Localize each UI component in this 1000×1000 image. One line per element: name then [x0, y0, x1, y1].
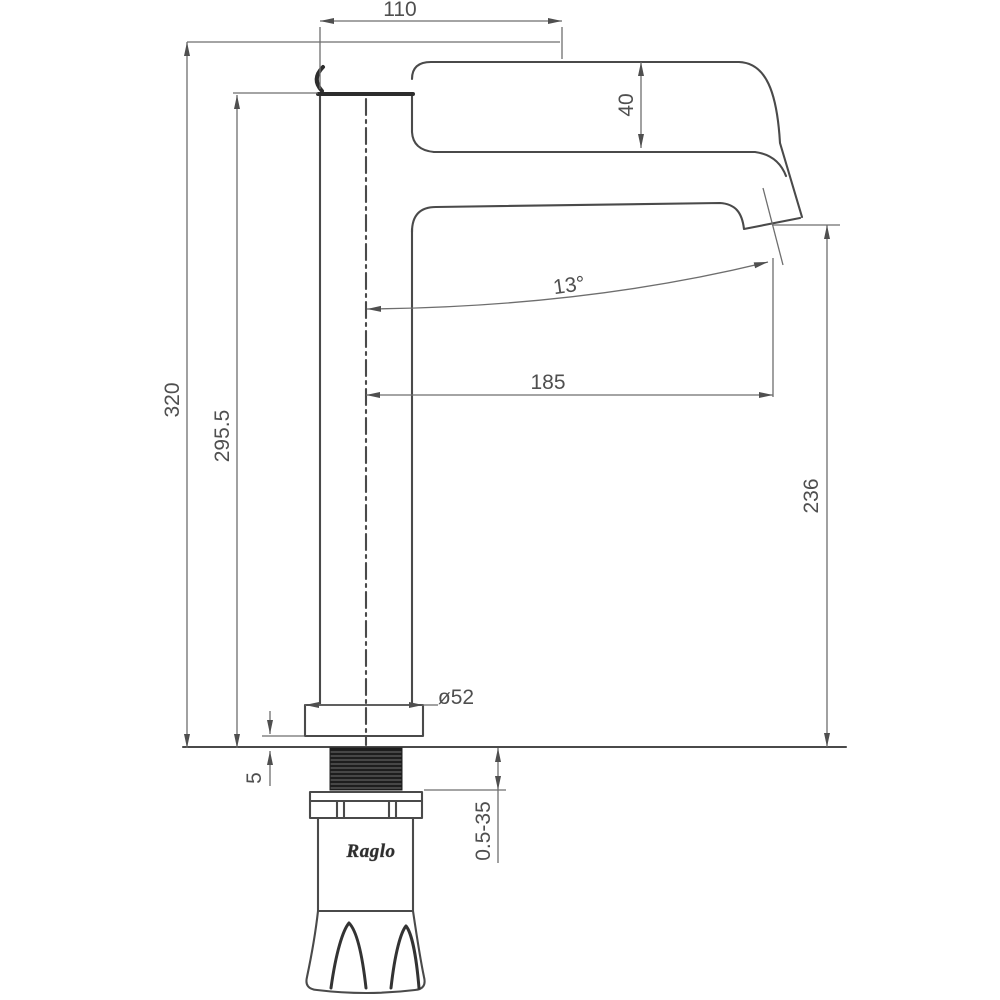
foot-ridge-right	[391, 926, 419, 988]
dim-spout-angle: 13°	[367, 188, 783, 309]
dim-label-185: 185	[530, 371, 565, 394]
drawing-canvas: 110 320 295.5 40 13° 185	[0, 0, 1000, 1000]
dim-label-5: 5	[243, 772, 266, 784]
spout-outline	[412, 203, 800, 232]
dim-label-110: 110	[383, 0, 416, 21]
dim-label-d52: ø52	[438, 686, 474, 709]
handle-lever-top	[412, 62, 802, 217]
dim-outlet-height: 236	[773, 225, 840, 747]
dim-label-13deg: 13°	[552, 272, 587, 299]
foot-ridge-left	[331, 923, 366, 988]
dim-label-236: 236	[800, 478, 823, 513]
locknut	[310, 792, 422, 818]
dim-top-width: 110	[320, 0, 562, 89]
dimensions: 110 320 295.5 40 13° 185	[161, 0, 840, 863]
body-right-edge-upper	[412, 95, 434, 152]
dim-handle-height: 40	[615, 62, 641, 148]
dim-label-40: 40	[615, 93, 638, 116]
lower-tube	[318, 818, 413, 911]
dim-base-plate: 5	[243, 711, 304, 786]
brand-logo: Raglo	[346, 841, 396, 862]
handle-lever-bottom	[434, 152, 786, 176]
dim-label-0-5-35: 0.5-35	[472, 801, 495, 861]
faucet-outline	[183, 62, 846, 993]
dim-label-295-5: 295.5	[211, 410, 234, 463]
faucet-technical-drawing: 110 320 295.5 40 13° 185	[0, 0, 1000, 1000]
dim-deck-thickness: 0.5-35	[424, 748, 506, 863]
dim-base-diameter: ø52	[305, 686, 474, 709]
dim-body-height: 295.5	[211, 93, 318, 748]
dim-label-320: 320	[161, 382, 184, 417]
base-flange	[305, 705, 423, 736]
